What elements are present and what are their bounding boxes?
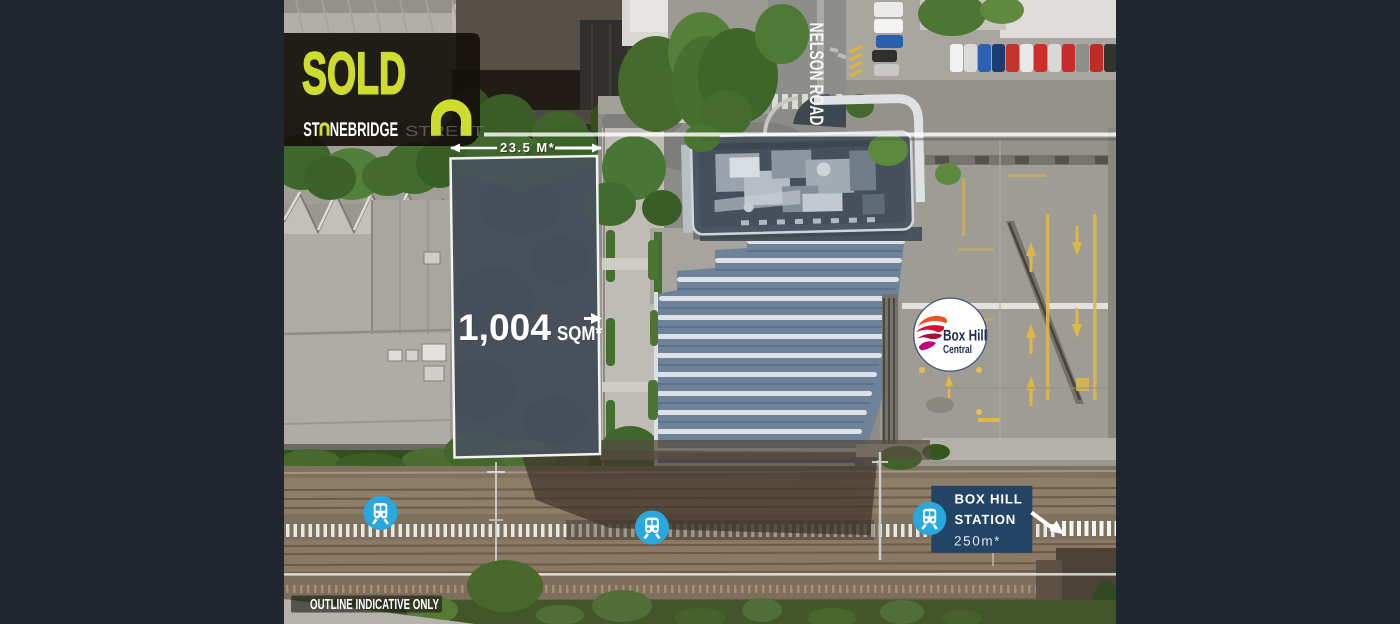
svg-text:1,004: 1,004 [458, 307, 551, 348]
svg-text:BOX HILL: BOX HILL [955, 492, 1025, 507]
svg-text:SOLD: SOLD [302, 41, 406, 107]
svg-text:Box Hill: Box Hill [943, 328, 987, 345]
svg-text:STATION: STATION [955, 512, 1018, 527]
svg-text:OUTLINE INDICATIVE ONLY: OUTLINE INDICATIVE ONLY [310, 597, 439, 613]
svg-text:ST: ST [303, 119, 320, 141]
svg-text:STREET: STREET [405, 124, 484, 140]
svg-text:Central: Central [943, 344, 972, 356]
svg-text:NEBRIDGE: NEBRIDGE [330, 119, 398, 141]
svg-text:23.5 M*: 23.5 M* [500, 140, 555, 155]
svg-text:NELSON ROAD: NELSON ROAD [805, 23, 827, 126]
svg-text:250m*: 250m* [954, 533, 1001, 548]
svg-text:SQM*: SQM* [557, 323, 602, 345]
